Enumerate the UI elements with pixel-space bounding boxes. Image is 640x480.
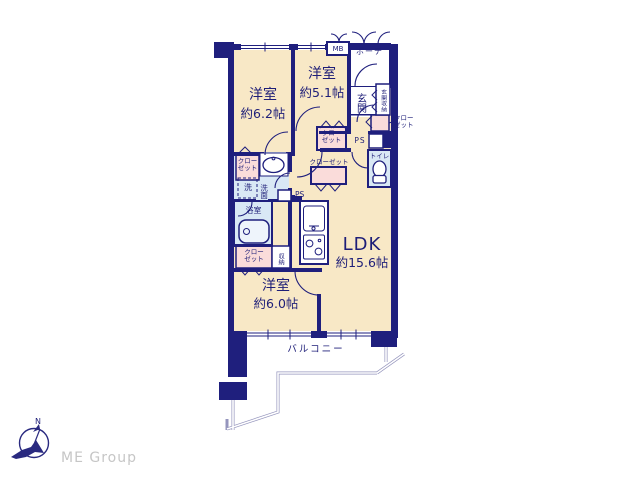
- closet-hall-center-label: クローゼット: [307, 159, 351, 166]
- closet-bedroom60-line2: ゼット: [237, 256, 271, 263]
- door-meter-box-left: [331, 34, 339, 42]
- storage-label: 収納: [277, 250, 284, 268]
- entrance-label: 玄関: [354, 89, 366, 117]
- brand-logo-text: ME Group: [61, 450, 151, 466]
- laundry-label: 洗: [239, 183, 257, 192]
- closet-hall-upper-label: クロー ゼット: [317, 130, 346, 145]
- toilet-icon: [373, 161, 386, 183]
- meter-box-label: MB: [327, 45, 349, 53]
- door-porch-left: [352, 32, 364, 44]
- pipe-space-center-box: [278, 190, 291, 201]
- closet-washroom-label: クロー ゼット: [236, 158, 259, 173]
- balcony-railing: [227, 347, 404, 430]
- room-size-ldk: 約15.6帖: [324, 256, 400, 270]
- pipe-space-right-label: PS: [352, 137, 368, 146]
- door-porch-right: [364, 32, 376, 44]
- toilet-label: トイレ: [369, 153, 390, 160]
- entrance-storage-label: 玄関収納: [379, 87, 386, 114]
- closet-entrance-line2: ゼット: [394, 122, 422, 129]
- room-size-bedroom51: 約5.1帖: [286, 86, 358, 100]
- room-size-bedroom62: 約6.2帖: [226, 107, 300, 121]
- room-label-ldk: LDK: [324, 235, 400, 256]
- balcony-label: バルコニー: [278, 345, 354, 356]
- room-label-bedroom60: 洋室: [244, 278, 308, 294]
- bathtub-icon: [239, 220, 269, 243]
- closet-hall-upper-line2: ゼット: [317, 137, 346, 144]
- compass-north-label: N: [31, 417, 45, 426]
- compass-icon: [11, 424, 49, 459]
- closet-entrance-label: クロー ゼット: [394, 115, 422, 130]
- door-porch-side: [378, 32, 390, 44]
- washroom-label: 洗面: [259, 181, 268, 201]
- pipe-space-center-label: PS: [295, 191, 311, 200]
- room-size-bedroom60: 約6.0帖: [239, 297, 313, 311]
- bathroom-label: 浴室: [239, 206, 268, 215]
- porch-label: ポーチ: [351, 47, 388, 56]
- closet-washroom-line2: ゼット: [236, 165, 259, 172]
- kitchen-stove-icon: [304, 235, 325, 259]
- room-label-bedroom51: 洋室: [291, 66, 353, 82]
- floorplan-canvas: 洋室 約6.2帖 洋室 約5.1帖 LDK 約15.6帖 洋室 約6.0帖 バル…: [0, 0, 640, 480]
- closet-bedroom60-label: クロー ゼット: [237, 249, 271, 264]
- washbasin-icon: [260, 153, 288, 176]
- door-meter-box-right: [339, 34, 347, 42]
- pipe-space-right-box: [369, 134, 383, 148]
